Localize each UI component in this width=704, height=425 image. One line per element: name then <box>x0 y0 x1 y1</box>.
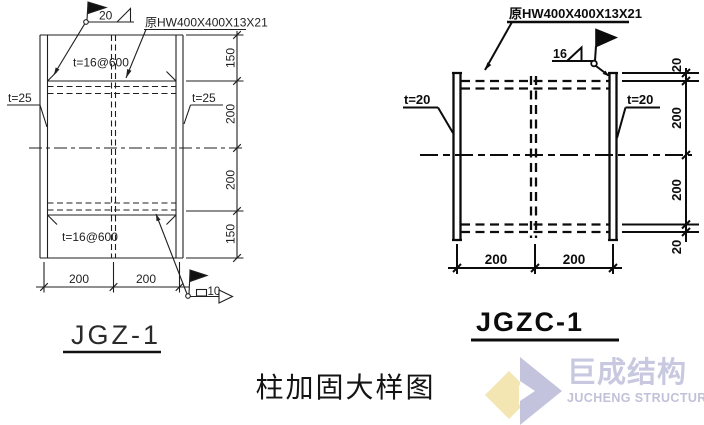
dim-20-top: 20 <box>669 58 684 72</box>
jgzc1-web-hidden-lines <box>531 76 536 238</box>
jgz1-diagram: 150 200 200 150 200 200 原HW400X400X13X21 <box>7 2 268 352</box>
logo-mark-icon <box>483 355 565 425</box>
jgzc1-detail-name: JGZC-1 <box>476 307 584 337</box>
drawing-sheet: 150 200 200 150 200 200 原HW400X400X13X21 <box>0 0 704 425</box>
sheet-title: 柱加固大样图 <box>228 366 463 406</box>
logo-words: 巨成结构 JUCHENG STRUCTURE <box>567 357 704 405</box>
arrow-right-icon <box>219 290 233 303</box>
thickness-label: t=20 <box>404 92 430 107</box>
jgz1-stiffener-spec-top: t=16@600 <box>73 56 129 70</box>
thickness-label: t=25 <box>8 91 32 105</box>
section-label-text: 原HW400X400X13X21 <box>145 16 268 30</box>
jgz1-t25-left: t=25 <box>7 91 47 127</box>
slot-weld-icon <box>197 290 207 297</box>
jgz1-section-label: 原HW400X400X13X21 <box>126 16 268 79</box>
dim-200-bottom-left: 200 <box>69 272 89 286</box>
leader-arrow <box>54 67 60 74</box>
section-label-text: 原HW400X400X13X21 <box>509 6 642 21</box>
leader-arrow <box>126 69 132 78</box>
fillet-weld-icon <box>117 9 131 23</box>
leader-arrow <box>485 62 491 70</box>
company-logo: 巨成结构 JUCHENG STRUCTURE <box>483 355 704 425</box>
jgzc1-t20-left: t=20 <box>403 92 453 133</box>
dim-200-bottom-right: 200 <box>136 272 156 286</box>
weld-size-text: 10 <box>208 286 221 298</box>
jgz1-dimension-bottom: 200 200 <box>36 262 189 293</box>
dim-200-upper: 200 <box>224 104 238 124</box>
weld-size-text: 20 <box>99 9 113 23</box>
jgzc1-dimension-right: 20 200 200 20 <box>622 58 699 254</box>
jgz1-detail-name: JGZ-1 <box>71 320 161 350</box>
dim-200-lower: 200 <box>224 170 238 190</box>
field-weld-flag-icon <box>596 30 616 47</box>
jgzc1-diagram: 20 200 200 20 200 200 原HW400X400X13X21 1… <box>403 6 699 340</box>
jgzc1-t20-right: t=20 <box>617 92 660 138</box>
fillet-weld-icon <box>567 48 582 62</box>
dim-200-bottom-right: 200 <box>563 252 586 267</box>
jgzc1-dimension-bottom: 200 200 <box>448 244 622 274</box>
dim-200-upper: 200 <box>669 107 684 129</box>
jgz1-dimension-right: 150 200 200 150 <box>186 31 244 262</box>
field-weld-flag-icon <box>190 270 207 282</box>
dim-200-lower: 200 <box>669 179 684 201</box>
logo-text-en: JUCHENG STRUCTURE <box>567 391 704 405</box>
thickness-label: t=20 <box>627 92 653 107</box>
thickness-label: t=25 <box>192 91 216 105</box>
jgzc1-weld-symbol: 16 <box>552 30 616 77</box>
dim-200-bottom-left: 200 <box>485 252 508 267</box>
jgz1-t25-right: t=25 <box>184 91 223 124</box>
dim-20-bottom: 20 <box>669 240 684 254</box>
logo-text-zh: 巨成结构 <box>567 357 704 389</box>
jgz1-stiffener-spec-bottom: t=16@600 <box>62 230 118 244</box>
dim-150-bottom: 150 <box>224 224 238 244</box>
weld-size-text: 16 <box>553 47 567 61</box>
dim-150-top: 150 <box>224 48 238 68</box>
